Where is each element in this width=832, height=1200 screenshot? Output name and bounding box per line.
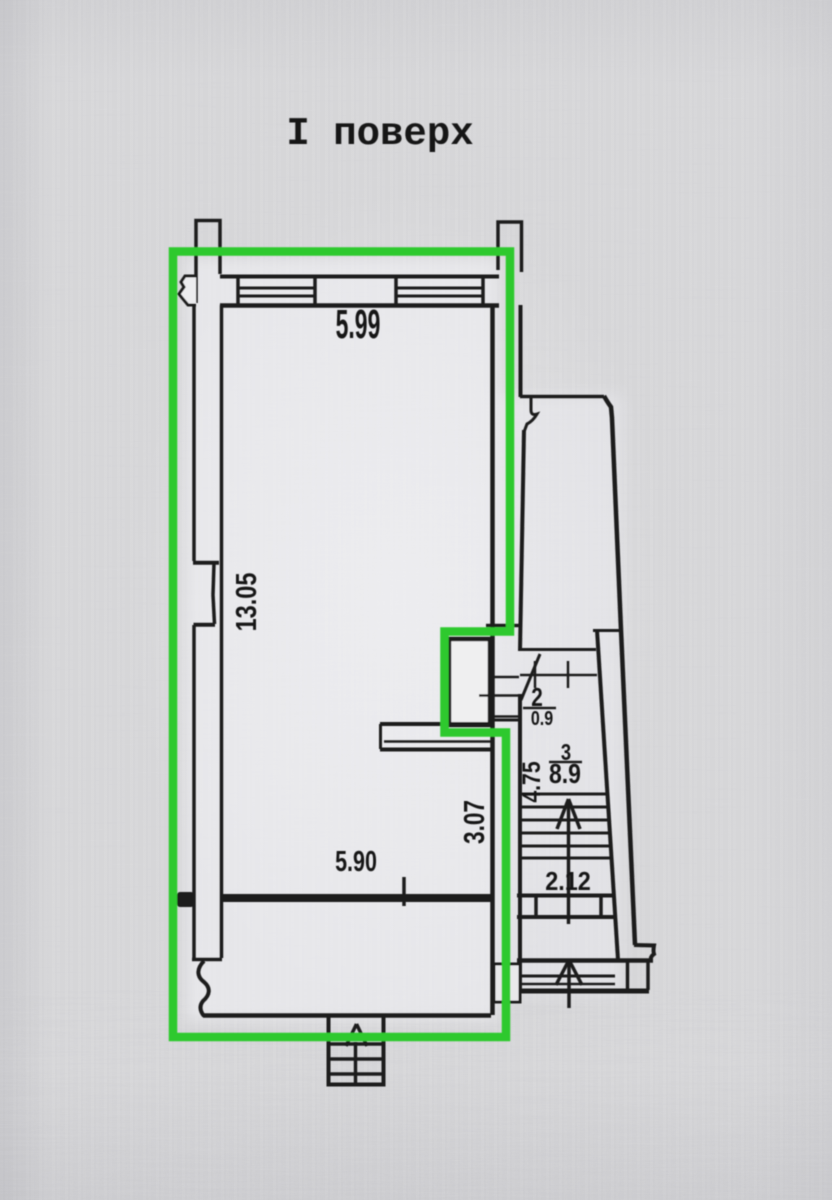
svg-text:8.9: 8.9 [549, 759, 581, 790]
svg-text:І поверх: І поверх [286, 112, 473, 156]
svg-text:2.12: 2.12 [545, 868, 591, 896]
svg-text:13.05: 13.05 [230, 573, 263, 632]
svg-text:3.07: 3.07 [457, 800, 490, 844]
svg-text:5.90: 5.90 [335, 846, 377, 878]
svg-text:5.99: 5.99 [336, 302, 381, 348]
svg-text:4.75: 4.75 [517, 761, 545, 802]
svg-text:0.9: 0.9 [531, 707, 553, 729]
